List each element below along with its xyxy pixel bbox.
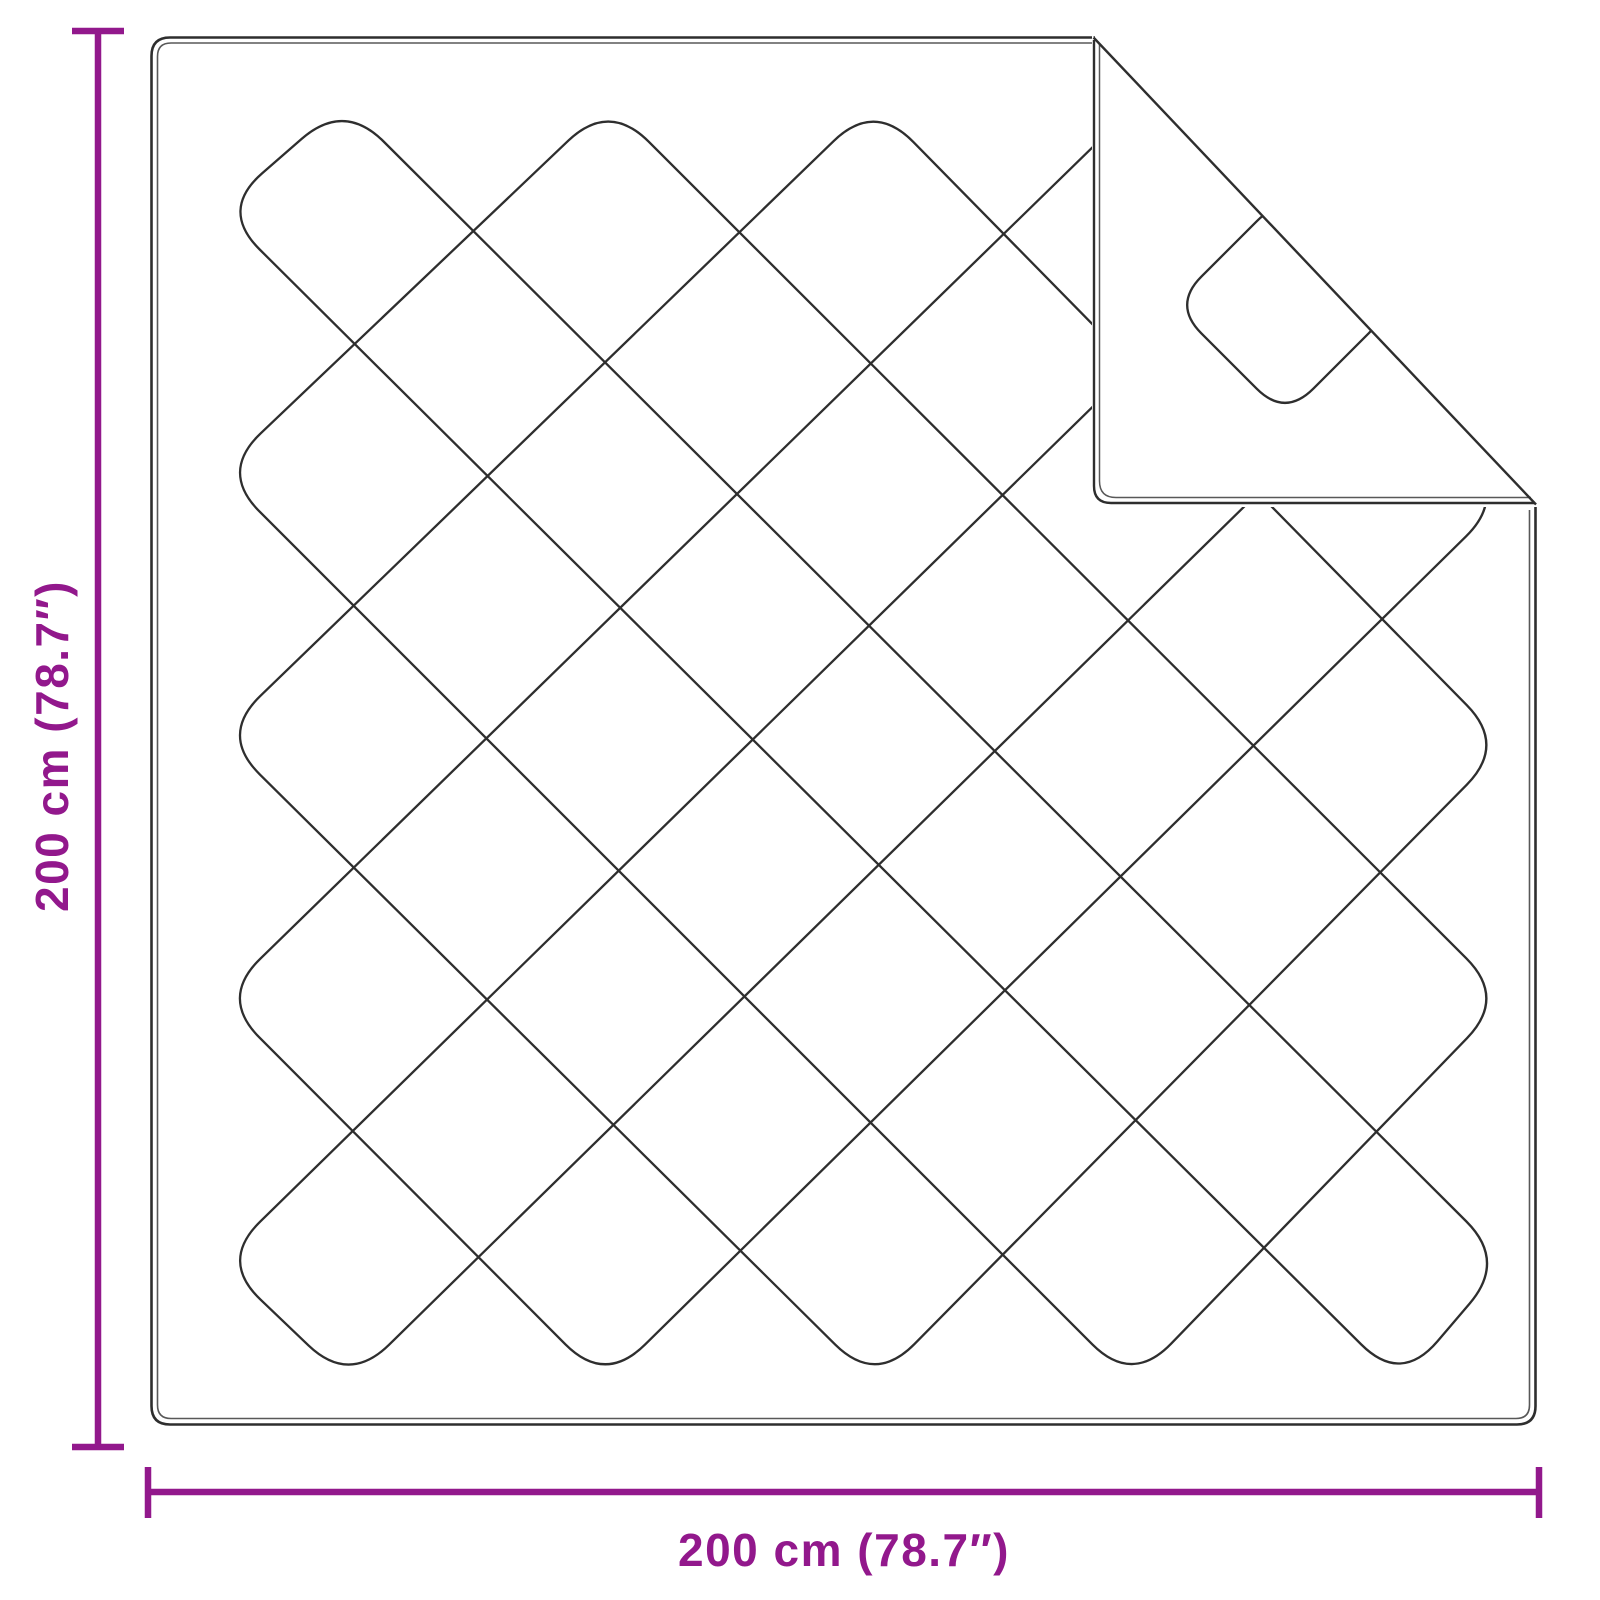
product-dimension-diagram: 200 cm (78.7″) 200 cm (78.7″) bbox=[0, 0, 1600, 1600]
blanket-outline-outer bbox=[152, 38, 1536, 1425]
width-dimension: 200 cm (78.7″) bbox=[148, 1467, 1539, 1576]
diagram-canvas: 200 cm (78.7″) 200 cm (78.7″) bbox=[0, 0, 1600, 1600]
blanket-outline-inner bbox=[158, 43, 1530, 1419]
width-dimension-label: 200 cm (78.7″) bbox=[678, 1524, 1010, 1576]
height-dimension: 200 cm (78.7″) bbox=[26, 31, 124, 1447]
blanket-outline bbox=[152, 38, 1536, 1425]
height-dimension-label: 200 cm (78.7″) bbox=[26, 580, 78, 912]
